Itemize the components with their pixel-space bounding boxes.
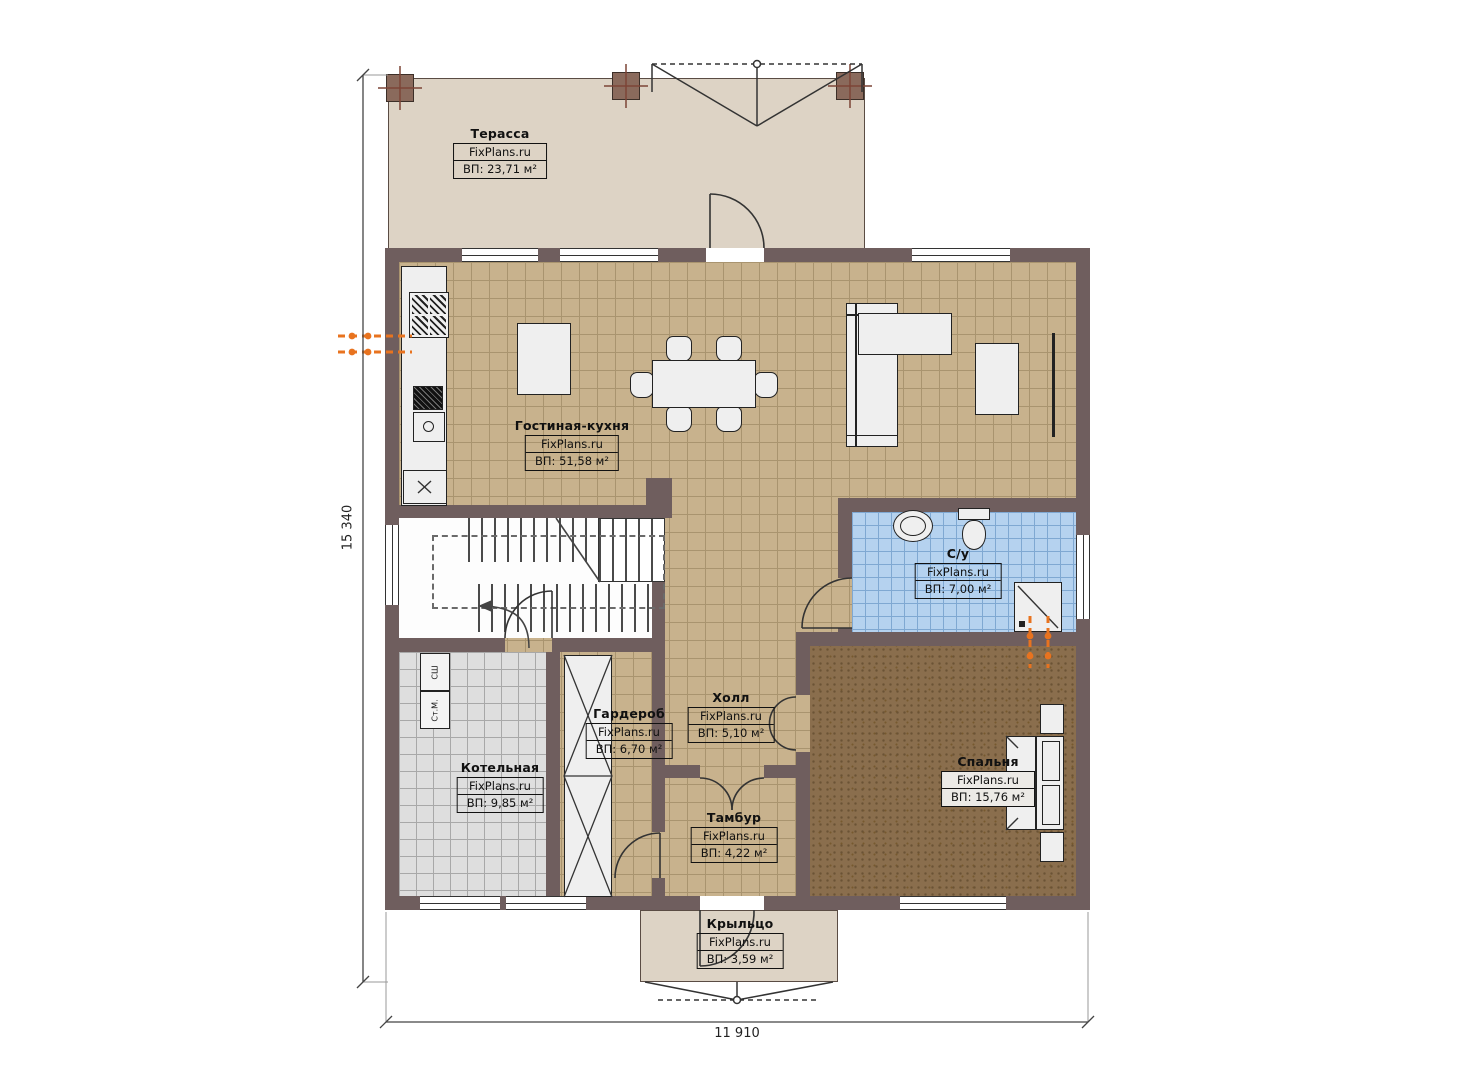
- sofa-chaise: [858, 313, 952, 355]
- dishwasher: [403, 470, 447, 504]
- chair: [666, 336, 692, 362]
- room-name: Гардероб: [586, 706, 673, 721]
- kitchen-island: [517, 323, 571, 395]
- room-name: Терасса: [453, 126, 547, 141]
- entrance-door-opening: [700, 896, 764, 910]
- bed-line: [1035, 737, 1037, 829]
- dining-table: [652, 360, 756, 408]
- wall: [546, 652, 560, 896]
- dimension-height: 15 340: [341, 498, 356, 558]
- washbasin: [893, 510, 933, 542]
- wall: [399, 638, 505, 652]
- floor-plan: СШ Ст.М.: [0, 0, 1473, 1080]
- wall: [838, 498, 1076, 512]
- brand-label: FixPlans.ru: [454, 144, 546, 161]
- room-label-boiler: Котельная FixPlans.ru ВП: 9,85 м²: [457, 760, 544, 813]
- toilet-tank: [958, 508, 990, 520]
- burner-icon: [430, 295, 446, 314]
- wall: [665, 765, 700, 778]
- burner-icon: [412, 316, 428, 335]
- window: [912, 248, 1010, 262]
- dimension-width: 11 910: [697, 1026, 777, 1041]
- window: [462, 248, 538, 262]
- window: [385, 525, 399, 605]
- shower-drain-icon: [1019, 621, 1025, 627]
- brand-label: FixPlans.ru: [458, 778, 543, 795]
- room-area: ВП: 4,22 м²: [692, 845, 777, 861]
- room-name: Спальня: [941, 754, 1035, 769]
- window: [900, 896, 1006, 910]
- room-label-wardrobe: Гардероб FixPlans.ru ВП: 6,70 м²: [586, 706, 673, 759]
- room-name: Котельная: [457, 760, 544, 775]
- terrace-column: [836, 72, 864, 100]
- room-area: ВП: 23,71 м²: [454, 161, 546, 177]
- wall: [652, 878, 665, 896]
- room-label-living-kitchen: Гостиная-кухня FixPlans.ru ВП: 51,58 м²: [515, 418, 629, 471]
- chair: [666, 406, 692, 432]
- room-label-vestibule: Тамбур FixPlans.ru ВП: 4,22 м²: [691, 810, 778, 863]
- room-area: ВП: 5,10 м²: [689, 725, 774, 741]
- room-area: ВП: 51,58 м²: [526, 453, 618, 469]
- nightstand: [1040, 704, 1064, 734]
- pillow: [1042, 785, 1060, 825]
- burner-icon: [412, 295, 428, 314]
- brand-label: FixPlans.ru: [587, 724, 672, 741]
- wall: [796, 646, 810, 695]
- window: [1076, 535, 1090, 619]
- drying-cabinet-label: СШ: [430, 665, 439, 679]
- room-name: Тамбур: [691, 810, 778, 825]
- chair: [716, 336, 742, 362]
- kitchen-sink: [413, 412, 445, 442]
- brand-label: FixPlans.ru: [526, 436, 618, 453]
- burner-icon: [430, 316, 446, 335]
- washing-machine: Ст.М.: [420, 691, 450, 729]
- terrace-column: [612, 72, 640, 100]
- room-area: ВП: 15,76 м²: [942, 789, 1034, 805]
- room-name: Холл: [688, 690, 775, 705]
- room-label-porch: Крыльцо FixPlans.ru ВП: 3,59 м²: [697, 916, 784, 969]
- room-label-bathroom: С/у FixPlans.ru ВП: 7,00 м²: [915, 546, 1002, 599]
- wall: [552, 638, 665, 652]
- room-name: С/у: [915, 546, 1002, 561]
- nightstand: [1040, 832, 1064, 862]
- terrace-door-opening: [706, 248, 764, 262]
- brand-label: FixPlans.ru: [942, 772, 1034, 789]
- brand-label: FixPlans.ru: [692, 828, 777, 845]
- room-name: Гостиная-кухня: [515, 418, 629, 433]
- room-area: ВП: 9,85 м²: [458, 795, 543, 811]
- window: [506, 896, 586, 910]
- brand-label: FixPlans.ru: [916, 564, 1001, 581]
- stove: [409, 292, 449, 338]
- wall: [764, 765, 810, 778]
- wall: [399, 505, 652, 518]
- coffee-table: [975, 343, 1019, 415]
- window: [560, 248, 658, 262]
- drainer: [413, 386, 443, 410]
- room-label-terrace: Терасса FixPlans.ru ВП: 23,71 м²: [453, 126, 547, 179]
- porch-canopy-icon: [645, 982, 833, 1004]
- drain-icon: [423, 421, 434, 432]
- chair: [630, 372, 654, 398]
- chair: [716, 406, 742, 432]
- chair: [754, 372, 778, 398]
- room-label-hall: Холл FixPlans.ru ВП: 5,10 м²: [688, 690, 775, 743]
- stairs-outline: [432, 535, 665, 609]
- tv: [1052, 333, 1055, 437]
- terrace-column: [386, 74, 414, 102]
- room-area: ВП: 3,59 м²: [698, 951, 783, 967]
- wall: [838, 512, 852, 578]
- brand-label: FixPlans.ru: [689, 708, 774, 725]
- sofa-back-line: [855, 304, 857, 446]
- brand-label: FixPlans.ru: [698, 934, 783, 951]
- room-name: Крыльцо: [697, 916, 784, 931]
- shower-tray: [1014, 582, 1062, 632]
- room-label-bedroom: Спальня FixPlans.ru ВП: 15,76 м²: [941, 754, 1035, 807]
- closet: [564, 655, 612, 897]
- wall: [838, 628, 852, 646]
- basin-bowl: [900, 516, 926, 536]
- pillow: [1042, 741, 1060, 781]
- drying-cabinet: СШ: [420, 653, 450, 691]
- washing-machine-label: Ст.М.: [430, 699, 439, 721]
- room-area: ВП: 6,70 м²: [587, 741, 672, 757]
- room-area: ВП: 7,00 м²: [916, 581, 1001, 597]
- window: [420, 896, 500, 910]
